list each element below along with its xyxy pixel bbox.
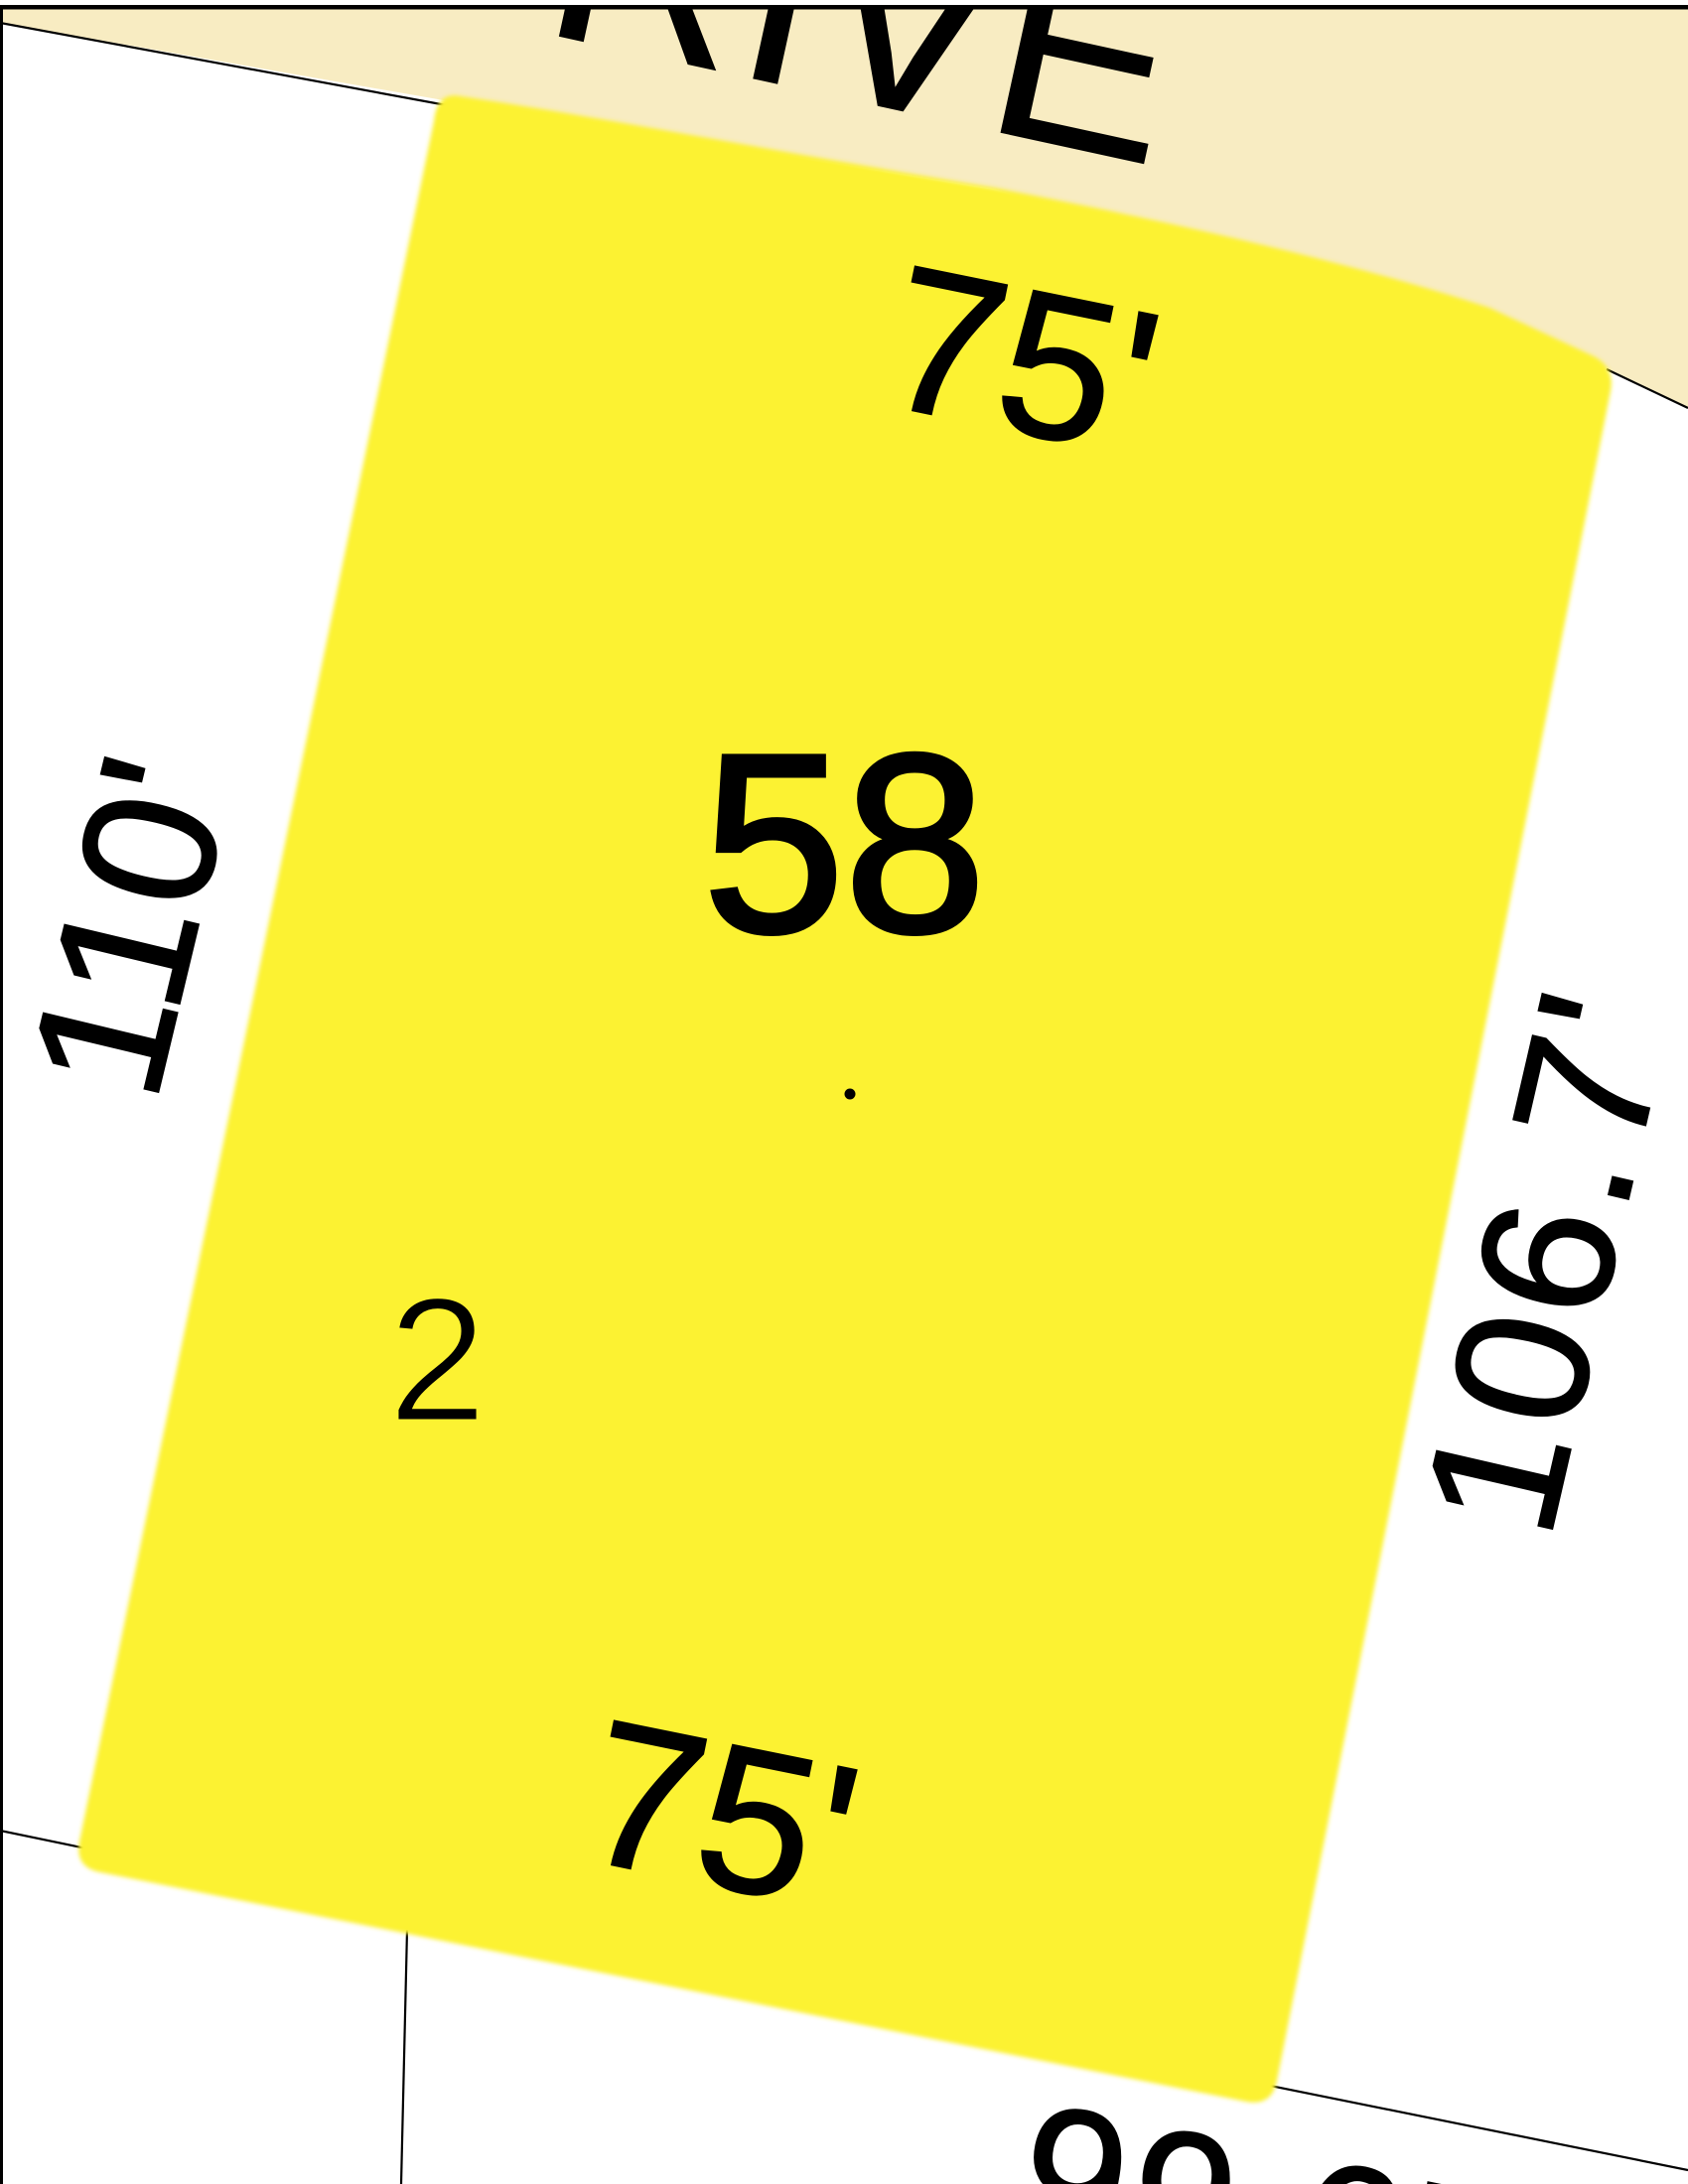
svg-text:58: 58 <box>703 702 986 986</box>
svg-text:2: 2 <box>388 1261 487 1458</box>
